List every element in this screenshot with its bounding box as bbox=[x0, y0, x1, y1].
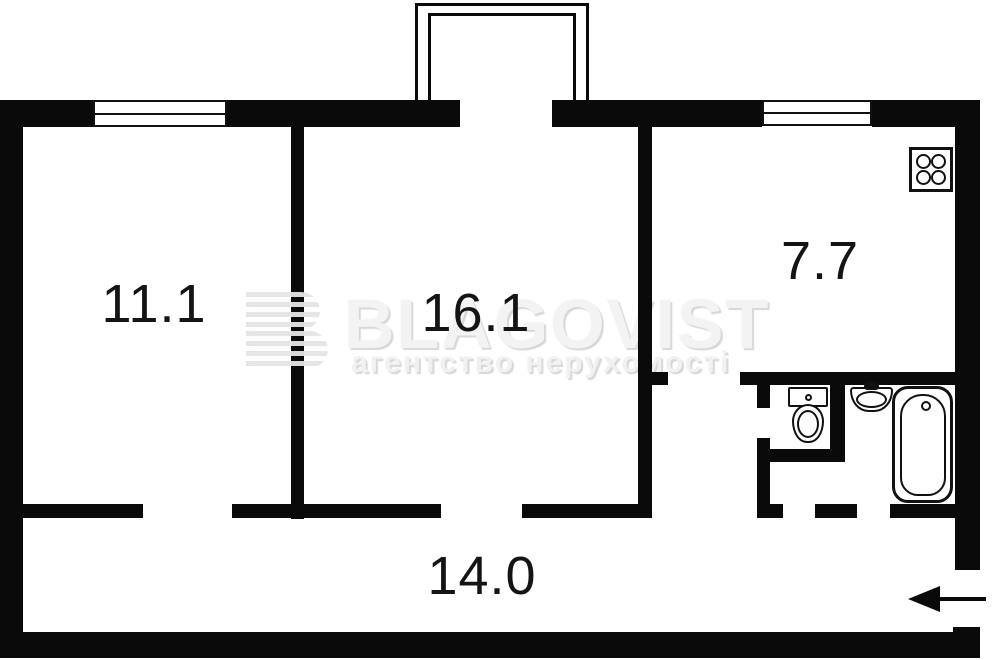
wall-rooms-hall-1 bbox=[23, 504, 143, 518]
hallway-area-label: 14.0 bbox=[412, 549, 552, 603]
window-kitchen-icon bbox=[762, 100, 872, 126]
wall-bath-bottom-3 bbox=[890, 504, 955, 518]
bathtub-drain-icon bbox=[921, 401, 931, 411]
wall-wc-left-upper bbox=[757, 385, 770, 408]
sink-basin-icon bbox=[856, 391, 887, 408]
wall-bath-bottom-1 bbox=[757, 504, 783, 518]
watermark-tagline-text: агентство нерухомості bbox=[351, 346, 730, 380]
wall-bottom bbox=[0, 632, 953, 658]
wall-left bbox=[0, 100, 23, 658]
wall-kitchen-bathroom bbox=[740, 372, 955, 385]
wall-right bbox=[955, 100, 980, 570]
wall-kitchen-corridor-stub bbox=[652, 372, 668, 385]
kitchen-area-label: 7.7 bbox=[750, 234, 890, 288]
wall-top-3 bbox=[552, 100, 762, 127]
entrance-arrow-icon bbox=[908, 586, 940, 612]
wall-wc-bottom bbox=[770, 449, 830, 462]
stove-burner-icon bbox=[931, 170, 946, 185]
entrance-arrow-shaft bbox=[938, 597, 986, 601]
wall-wc-right bbox=[830, 385, 845, 462]
stove-burner-icon bbox=[931, 154, 946, 169]
watermark-logo-icon bbox=[246, 331, 328, 368]
toilet-bowl-inner-icon bbox=[797, 410, 819, 438]
wall-bottom-right-corner bbox=[953, 627, 980, 658]
window-pane-divider bbox=[763, 112, 871, 114]
wall-bath-bottom-2 bbox=[815, 504, 857, 518]
sink-tap-icon bbox=[864, 381, 879, 390]
toilet-flush-button-icon bbox=[805, 394, 812, 401]
stove-burner-icon bbox=[916, 154, 931, 169]
wall-top-2 bbox=[227, 100, 460, 127]
wall-rooms-hall-3 bbox=[522, 504, 652, 518]
wall-room2-kitchen bbox=[638, 127, 652, 518]
window-pane-divider bbox=[94, 113, 226, 115]
balcony-inner-wall bbox=[428, 13, 576, 100]
floor-plan: BLAGOVIST агентство нерухомості bbox=[0, 0, 1000, 660]
watermark-logo-icon bbox=[246, 292, 320, 330]
room-left-area-label: 11.1 bbox=[84, 277, 224, 331]
stove-icon bbox=[909, 147, 953, 192]
stove-burner-icon bbox=[916, 170, 931, 185]
window-room-left-icon bbox=[93, 100, 227, 127]
wall-rooms-hall-2 bbox=[232, 504, 441, 518]
room-center-area-label: 16.1 bbox=[406, 286, 546, 340]
